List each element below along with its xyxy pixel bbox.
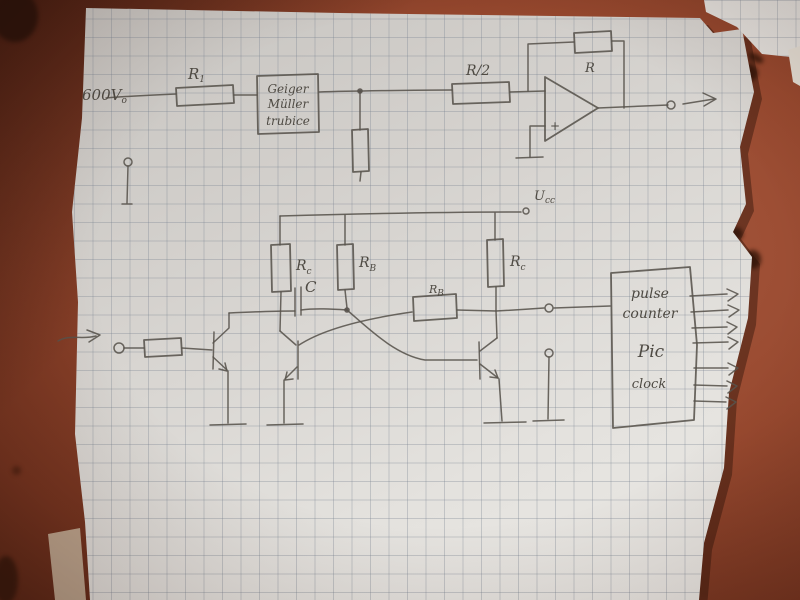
ground-symbol bbox=[267, 424, 303, 425]
pin-arrow-icon bbox=[726, 397, 736, 409]
pin-arrow-icon bbox=[727, 381, 737, 393]
resistor-body bbox=[352, 129, 369, 172]
counter-pin bbox=[694, 401, 726, 402]
wire bbox=[229, 311, 295, 313]
ground-symbol bbox=[210, 424, 246, 425]
handwritten-labels: 600Vo R1 Geiger Müller trubice R/2 R + U… bbox=[82, 61, 679, 392]
rhalf-label: R/2 bbox=[465, 63, 490, 79]
pin-arrow-icon bbox=[727, 289, 738, 301]
counter-pin bbox=[690, 294, 727, 296]
transistor-base-bar bbox=[479, 342, 480, 379]
resistor-rb-mid-body bbox=[413, 294, 457, 321]
counter-label-line1: pulse bbox=[631, 286, 669, 302]
counter-pin bbox=[691, 310, 728, 312]
transistor-base-bar bbox=[213, 332, 214, 369]
pin-arrow-icon bbox=[727, 322, 737, 334]
tube-bias-branch bbox=[319, 88, 452, 181]
ground-symbol bbox=[533, 420, 564, 421]
ucc-label: Ucc bbox=[534, 189, 555, 206]
ground-terminal bbox=[545, 349, 553, 357]
geiger-label-line1: Geiger bbox=[267, 82, 309, 96]
input-arrow bbox=[58, 336, 96, 341]
wire bbox=[499, 379, 502, 421]
rb-left-label: RB bbox=[358, 255, 377, 274]
wire bbox=[528, 42, 574, 91]
geiger-label-line2: Müller bbox=[267, 97, 310, 111]
rc-right-label: Rc bbox=[509, 254, 526, 273]
wire bbox=[548, 357, 549, 419]
wire bbox=[182, 348, 212, 350]
pin-arrow-icon bbox=[728, 363, 738, 375]
circuit-schematic: 600Vo R1 Geiger Müller trubice R/2 R + U… bbox=[0, 0, 800, 600]
counter-pin bbox=[692, 327, 727, 328]
resistor-r1-body bbox=[176, 85, 234, 106]
opamp-section bbox=[452, 31, 716, 158]
input-terminal bbox=[114, 343, 124, 353]
counter-label-line4: clock bbox=[632, 377, 667, 392]
resistor-rc-right-body bbox=[487, 239, 504, 287]
feedback-r-label: R bbox=[584, 61, 595, 76]
resistor-rc-left-body bbox=[271, 244, 291, 292]
wire bbox=[598, 105, 668, 108]
probe-mark bbox=[122, 158, 132, 204]
r1-label: R1 bbox=[187, 65, 205, 85]
wire bbox=[280, 212, 521, 216]
rc-left-label: Rc bbox=[295, 258, 312, 277]
output-terminal bbox=[545, 304, 553, 312]
pin-arrow-icon bbox=[728, 305, 739, 317]
opamp-plus-label: + bbox=[550, 119, 560, 133]
probe-lead bbox=[127, 166, 128, 203]
wire bbox=[496, 287, 497, 338]
ground-symbol bbox=[516, 157, 543, 158]
counter-pin bbox=[693, 342, 728, 343]
wire bbox=[554, 306, 610, 308]
geiger-label-line3: trubice bbox=[266, 114, 310, 128]
transistor-input bbox=[210, 313, 246, 425]
transistor-collector bbox=[213, 313, 229, 343]
pin-arrow-icon bbox=[728, 337, 738, 349]
probe-terminal bbox=[124, 158, 132, 166]
ground-symbol bbox=[484, 422, 526, 423]
supply-voltage-label: 600Vo bbox=[82, 86, 127, 106]
counter-label-line3: Pic bbox=[637, 342, 665, 362]
resistor-rb-left-body bbox=[337, 244, 354, 290]
pulse-input-section bbox=[58, 330, 212, 357]
wire bbox=[345, 290, 347, 308]
resistor-rhalf-body bbox=[452, 82, 510, 104]
counter-pin bbox=[694, 385, 727, 386]
flipflop-section bbox=[229, 287, 610, 425]
resistor-input-body bbox=[144, 338, 182, 357]
wire bbox=[457, 308, 544, 311]
counter-label-line2: counter bbox=[623, 306, 679, 322]
capacitor-label: C bbox=[305, 278, 317, 296]
resistor-feedback-body bbox=[574, 31, 612, 53]
hv-input-section bbox=[106, 85, 257, 106]
wire bbox=[530, 126, 545, 157]
transistor-collector bbox=[480, 338, 497, 351]
wire bbox=[612, 41, 624, 108]
wire bbox=[319, 90, 452, 92]
wire bbox=[360, 172, 361, 181]
wire bbox=[301, 309, 347, 310]
photo-scene: 600Vo R1 Geiger Müller trubice R/2 R + U… bbox=[0, 0, 800, 600]
ucc-terminal bbox=[523, 208, 529, 214]
transistor-collector bbox=[280, 331, 296, 345]
